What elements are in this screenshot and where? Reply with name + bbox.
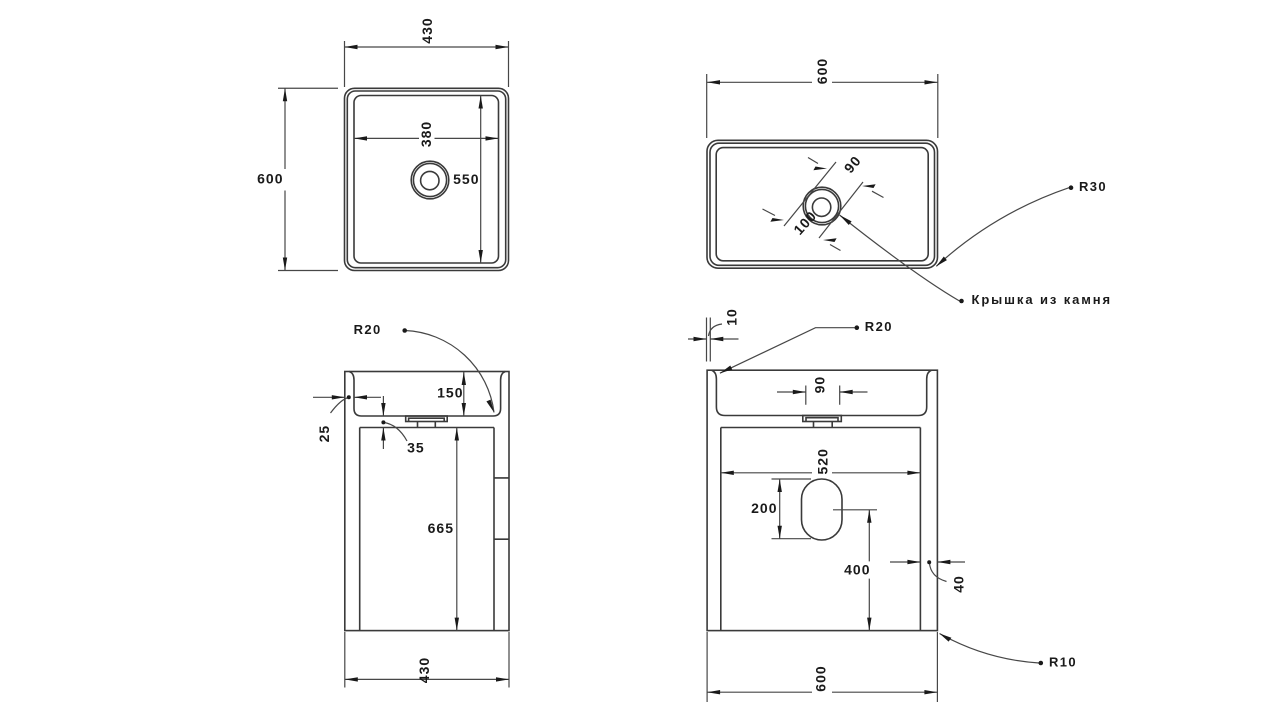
svg-text:Крышка из камня: Крышка из камня: [972, 292, 1113, 307]
svg-text:90: 90: [812, 376, 828, 394]
svg-text:430: 430: [419, 17, 435, 43]
svg-text:10: 10: [724, 308, 740, 326]
svg-text:R20: R20: [865, 319, 893, 334]
svg-text:150: 150: [437, 385, 463, 401]
svg-text:35: 35: [407, 440, 425, 456]
svg-text:200: 200: [751, 500, 777, 516]
svg-text:600: 600: [813, 665, 829, 691]
svg-text:380: 380: [418, 121, 434, 147]
svg-text:550: 550: [453, 171, 479, 187]
svg-text:400: 400: [844, 562, 870, 578]
svg-text:520: 520: [814, 448, 830, 474]
svg-text:R30: R30: [1079, 179, 1107, 194]
svg-text:430: 430: [416, 657, 432, 683]
svg-text:600: 600: [257, 171, 283, 187]
svg-text:90: 90: [841, 152, 865, 176]
svg-text:R20: R20: [354, 322, 382, 337]
svg-text:R10: R10: [1049, 654, 1077, 669]
svg-text:600: 600: [814, 58, 830, 84]
svg-text:665: 665: [428, 520, 454, 536]
svg-text:40: 40: [951, 575, 967, 593]
svg-text:25: 25: [316, 425, 332, 443]
